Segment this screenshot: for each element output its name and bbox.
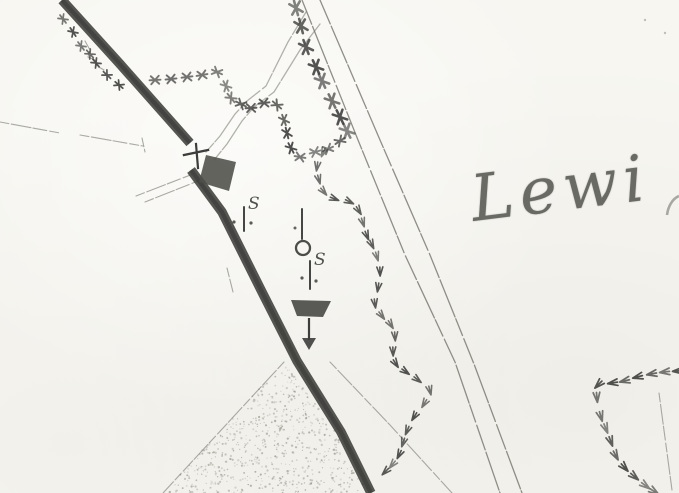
stipple-dot — [324, 451, 325, 452]
stipple-dot — [274, 408, 276, 410]
stipple-dot — [247, 408, 248, 409]
stipple-dot — [213, 483, 214, 484]
stipple-dot — [317, 482, 319, 484]
stipple-dot — [214, 466, 215, 467]
stipple-dot — [323, 462, 324, 463]
stipple-dot — [261, 480, 262, 481]
stipple-dot — [269, 407, 271, 409]
stipple-dot — [285, 367, 287, 369]
stipple-dot — [255, 417, 257, 419]
stipple-dot — [304, 482, 305, 483]
stipple-dot — [271, 397, 273, 399]
stipple-dot — [276, 410, 278, 412]
stipple-dot — [227, 469, 229, 471]
stipple-dot — [349, 483, 350, 484]
stipple-dot — [292, 389, 294, 391]
stipple-dot — [293, 395, 295, 397]
stipple-dot — [302, 421, 304, 423]
stipple-dot — [263, 445, 264, 446]
tree-mark — [672, 367, 679, 374]
stipple-dot — [201, 466, 202, 467]
stipple-dot — [234, 439, 235, 440]
stipple-dot — [214, 444, 216, 446]
stipple-dot — [334, 481, 335, 482]
field-line-west-line-a — [0, 122, 60, 133]
stipple-dot — [276, 425, 277, 426]
stipple-dot — [275, 479, 276, 480]
stipple-dot — [340, 486, 341, 487]
stipple-dot — [241, 457, 242, 458]
stipple-dot — [267, 415, 269, 417]
stipple-dot — [302, 387, 304, 389]
stipple-dot — [325, 424, 327, 426]
tree-mark — [324, 92, 340, 110]
stipple-dot — [205, 465, 207, 467]
tree-mark — [313, 162, 320, 172]
stipple-dot — [316, 459, 317, 460]
stipple-dot — [331, 472, 333, 474]
stipple-dot — [276, 401, 277, 402]
stipple-dot — [274, 456, 275, 457]
tree-mark — [380, 466, 391, 477]
stipple-dot — [275, 392, 277, 394]
stipple-dot — [281, 415, 283, 417]
scan-speck — [644, 19, 646, 21]
stipple-dot — [307, 402, 308, 403]
stipple-dot — [247, 465, 248, 466]
stipple-dot — [313, 431, 315, 433]
stipple-dot — [266, 383, 268, 385]
stipple-dot — [268, 435, 270, 437]
stipple-dot — [286, 387, 288, 389]
stipple-dot — [277, 484, 279, 486]
stipple-dot — [224, 453, 226, 455]
stipple-dot — [287, 472, 289, 474]
stipple-dot — [258, 419, 260, 421]
stipple-dot — [273, 401, 275, 403]
stipple-dot — [272, 487, 274, 489]
stipple-dot — [266, 458, 267, 459]
stipple-dot — [244, 447, 245, 448]
stipple-dot — [276, 447, 277, 448]
stipple-dot — [266, 433, 268, 435]
stipple-dot — [264, 473, 265, 474]
stipple-dot — [351, 470, 353, 472]
scan-speck — [664, 32, 666, 34]
stipple-dot — [307, 396, 309, 398]
stipple-dot — [240, 461, 241, 462]
stipple-dot — [202, 452, 204, 454]
stipple-dot — [243, 472, 245, 474]
stipple-dot — [232, 459, 234, 461]
stipple-dot — [247, 442, 248, 443]
stone-marker-symbol-2-dot — [300, 276, 303, 279]
stipple-dot — [250, 485, 252, 487]
stipple-dot — [280, 427, 282, 429]
stipple-dot — [308, 447, 310, 449]
stipple-dot — [267, 430, 268, 431]
stipple-dot — [357, 490, 358, 491]
stipple-dot — [294, 409, 296, 411]
tree-mark — [289, 0, 303, 17]
stipple-dot — [274, 385, 276, 387]
stipple-dot — [292, 480, 294, 482]
stipple-dot — [285, 453, 287, 455]
tree-mark — [332, 108, 348, 126]
tree-mark — [57, 13, 69, 25]
stipple-dot — [256, 457, 258, 459]
stipple-dot — [250, 421, 252, 423]
stipple-dot — [320, 440, 322, 442]
stipple-dot — [318, 431, 320, 433]
stipple-dot — [228, 490, 230, 492]
stipple-dot — [319, 423, 320, 424]
stipple-dot — [237, 459, 239, 461]
stipple-dot — [260, 423, 261, 424]
stipple-dot — [291, 415, 293, 417]
stipple-dot — [258, 459, 260, 461]
stipple-dot — [311, 479, 313, 481]
clipped-letter-stroke — [667, 196, 679, 215]
stipple-dot — [295, 446, 297, 448]
stipple-dot — [234, 491, 235, 492]
stipple-dot — [298, 421, 300, 423]
stipple-dot — [291, 444, 293, 446]
stipple-dot — [335, 449, 337, 451]
stipple-dot — [259, 404, 260, 405]
stipple-dot — [193, 486, 194, 487]
tree-mark — [270, 98, 284, 111]
stipple-dot — [262, 417, 264, 419]
stipple-dot — [291, 460, 293, 462]
stipple-dot — [230, 477, 232, 479]
stipple-dot — [226, 429, 227, 430]
stipple-dot — [310, 461, 311, 462]
stipple-dot — [229, 458, 231, 460]
stipple-dot — [296, 459, 298, 461]
tree-mark — [426, 385, 434, 395]
stipple-dot — [293, 468, 294, 469]
stipple-dot — [262, 408, 263, 409]
stipple-dot — [302, 429, 303, 430]
stipple-dot — [234, 437, 236, 439]
stipple-dot — [283, 394, 285, 396]
stipple-dot — [298, 491, 299, 492]
stipple-dot — [265, 424, 267, 426]
stipple-dot — [350, 467, 352, 469]
stipple-dot — [247, 480, 248, 481]
stipple-dot — [305, 414, 307, 416]
stipple-dot — [251, 460, 253, 462]
tree-mark — [362, 230, 371, 241]
stipple-dot — [293, 426, 294, 427]
stipple-dot — [223, 469, 225, 471]
stipple-dot — [320, 461, 321, 462]
stipple-dot — [319, 483, 321, 485]
tree-mark — [649, 486, 661, 493]
stipple-dot — [269, 414, 271, 416]
stipple-dot — [220, 474, 222, 476]
stone-marker-symbol-label: S — [248, 194, 260, 214]
stipple-dot — [247, 476, 248, 477]
stipple-dot — [326, 455, 327, 456]
tree-mark — [165, 75, 177, 84]
stipple-dot — [211, 481, 213, 483]
stipple-dot — [268, 476, 269, 477]
stipple-dot — [225, 442, 227, 444]
stipple-dot — [298, 394, 300, 396]
stipple-dot — [274, 440, 275, 441]
stipple-dot — [296, 386, 298, 388]
stipple-dot — [262, 440, 263, 441]
stipple-dot — [320, 480, 322, 482]
stipple-dot — [301, 483, 303, 485]
tree-mark — [359, 217, 367, 227]
stipple-dot — [289, 470, 290, 471]
stipple-dot — [281, 421, 283, 423]
stipple-dot — [311, 422, 313, 424]
stipple-dot — [320, 425, 322, 427]
stipple-dot — [302, 415, 304, 417]
stipple-dot — [260, 390, 262, 392]
stipple-dot — [201, 473, 203, 475]
tree-mark — [367, 239, 376, 250]
stipple-dot — [315, 419, 316, 420]
stipple-dot — [303, 477, 305, 479]
stipple-dot — [304, 427, 305, 428]
stipple-dot — [239, 431, 241, 433]
stipple-dot — [271, 421, 273, 423]
stipple-dot — [265, 404, 267, 406]
stipple-dot — [221, 467, 223, 469]
stipple-dot — [237, 442, 238, 443]
stipple-dot — [329, 488, 331, 490]
stipple-dot — [280, 482, 282, 484]
field-line-east-edge-line — [659, 393, 672, 490]
stipple-dot — [285, 375, 286, 376]
stipple-dot — [281, 489, 283, 491]
tree-mark — [278, 113, 289, 126]
stipple-dot — [252, 423, 253, 424]
tree-mark — [400, 367, 411, 377]
stipple-dot — [257, 426, 258, 427]
stipple-dot — [224, 474, 226, 476]
stipple-dot — [206, 483, 207, 484]
stipple-dot — [302, 467, 304, 469]
stipple-dot — [322, 461, 323, 462]
stipple-dot — [278, 472, 279, 473]
well-symbol — [294, 209, 311, 255]
stipple-dot — [215, 456, 216, 457]
stipple-dot — [306, 417, 307, 418]
stipple-dot — [302, 403, 304, 405]
stipple-dot — [258, 462, 260, 464]
stipple-dot — [225, 461, 227, 463]
tree-mark — [282, 127, 292, 140]
stipple-dot — [316, 418, 318, 420]
stipple-dot — [233, 479, 234, 480]
stipple-dot — [321, 459, 323, 461]
stipple-dot — [311, 429, 313, 431]
stipple-dot — [217, 483, 219, 485]
stipple-dot — [298, 433, 300, 435]
stipple-dot — [263, 385, 264, 386]
stipple-dot — [238, 444, 239, 445]
stipple-dot — [284, 405, 286, 407]
stipple-dot — [298, 475, 300, 477]
stipple-dot — [262, 487, 264, 489]
stipple-dot — [317, 420, 319, 422]
stipple-dot — [312, 473, 313, 474]
stipple-dot — [194, 485, 196, 487]
stipple-dot — [286, 414, 288, 416]
tree-mark — [315, 174, 323, 184]
stipple-dot — [288, 397, 289, 398]
stipple-dot — [208, 464, 210, 466]
stipple-dot — [239, 449, 240, 450]
stipple-dot — [313, 448, 315, 450]
stipple-dot — [266, 469, 268, 471]
stipple-dot — [323, 455, 325, 457]
stipple-dot — [259, 449, 261, 451]
stipple-dot — [267, 400, 269, 402]
thick-road-upper-core — [62, 0, 190, 143]
stipple-dot — [295, 491, 297, 493]
stipple-dot — [295, 379, 296, 380]
stipple-dot — [210, 487, 212, 489]
stipple-dot — [228, 424, 229, 425]
stipple-dot — [283, 489, 284, 490]
stipple-dot — [274, 416, 276, 418]
stipple-dot — [290, 382, 292, 384]
stipple-dot — [341, 468, 342, 469]
stipple-dot — [248, 424, 250, 426]
stipple-dot — [230, 455, 232, 457]
stipple-dot — [261, 466, 263, 468]
stipple-dot — [286, 408, 288, 410]
stipple-dot — [291, 380, 292, 381]
stipple-dot — [186, 474, 188, 476]
stipple-dot — [274, 431, 276, 433]
field-line-roadside-dashes — [227, 268, 233, 292]
stipple-dot — [196, 488, 198, 490]
stipple-dot — [305, 457, 307, 459]
stipple-dot — [182, 487, 184, 489]
stipple-dot — [257, 448, 258, 449]
stipple-dot — [232, 439, 234, 441]
stipple-dot — [204, 468, 206, 470]
stone-marker-symbol-dot — [232, 220, 235, 223]
stipple-dot — [216, 442, 218, 444]
stipple-dot — [284, 420, 286, 422]
tree-mark — [619, 462, 631, 474]
tree-mark — [632, 372, 643, 381]
stipple-dot — [289, 436, 291, 438]
stipple-dot — [329, 448, 330, 449]
stipple-dot — [307, 475, 309, 477]
stipple-dot — [290, 411, 291, 412]
stipple-dot — [277, 468, 279, 470]
stipple-dot — [245, 445, 246, 446]
stipple-dot — [219, 442, 220, 443]
stipple-dot — [232, 448, 234, 450]
stipple-dot — [252, 428, 254, 430]
stipple-dot — [191, 466, 192, 467]
stipple-dot — [305, 393, 306, 394]
gate-stem — [196, 144, 198, 168]
stipple-dot — [317, 409, 318, 410]
tree-mark — [596, 411, 605, 422]
stipple-dot — [298, 385, 300, 387]
stipple-dot — [188, 477, 190, 479]
stipple-dot — [250, 407, 252, 409]
stone-marker-symbol-dot — [249, 221, 252, 224]
tree-mark — [601, 423, 611, 435]
stipple-dot — [178, 484, 179, 485]
stipple-dot — [272, 491, 273, 492]
stipple-dot — [244, 465, 246, 467]
stipple-dot — [261, 452, 263, 454]
stipple-dot — [285, 483, 287, 485]
stipple-dot — [265, 446, 267, 448]
stipple-dot — [347, 468, 348, 469]
stipple-dot — [263, 416, 265, 418]
stipple-dot — [203, 489, 204, 490]
stipple-dot — [254, 461, 255, 462]
tree-mark — [607, 379, 618, 387]
field-line-west-line-b-tick — [142, 138, 145, 152]
stipple-dot — [271, 462, 272, 463]
stipple-dot — [271, 463, 273, 465]
stipple-dot — [352, 472, 354, 474]
stipple-dot — [289, 481, 291, 483]
tree-mark — [409, 411, 419, 422]
stipple-dot — [236, 444, 237, 445]
stipple-dot — [307, 393, 309, 395]
tree-mark — [298, 38, 313, 56]
stipple-dot — [262, 442, 263, 443]
stipple-dot — [302, 447, 303, 448]
stipple-dot — [274, 420, 276, 422]
stipple-dot — [297, 443, 299, 445]
stipple-dot — [293, 474, 295, 476]
stipple-dot — [336, 453, 337, 454]
tree-mark — [390, 347, 396, 356]
stipple-dot — [221, 436, 223, 438]
tree-mark — [84, 48, 96, 60]
stipple-dot — [270, 457, 271, 458]
stipple-dot — [263, 439, 265, 441]
stipple-dot — [282, 385, 284, 387]
stipple-dot — [247, 484, 248, 485]
stipple-dot — [197, 458, 198, 459]
stipple-dot — [314, 434, 316, 436]
stipple-dot — [283, 429, 285, 431]
stipple-dot — [273, 413, 275, 415]
stipple-dot — [227, 475, 229, 477]
stipple-dot — [314, 403, 316, 405]
tree-mark — [610, 450, 621, 462]
stipple-dot — [296, 484, 297, 485]
stipple-dot — [188, 475, 189, 476]
stipple-dot — [282, 452, 284, 454]
stipple-dot — [273, 468, 275, 470]
stipple-dot — [217, 476, 218, 477]
tree-mark — [606, 436, 616, 448]
stipple-dot — [241, 489, 243, 491]
field-line-approach-line-1 — [136, 174, 193, 196]
stipple-dot — [322, 467, 323, 468]
